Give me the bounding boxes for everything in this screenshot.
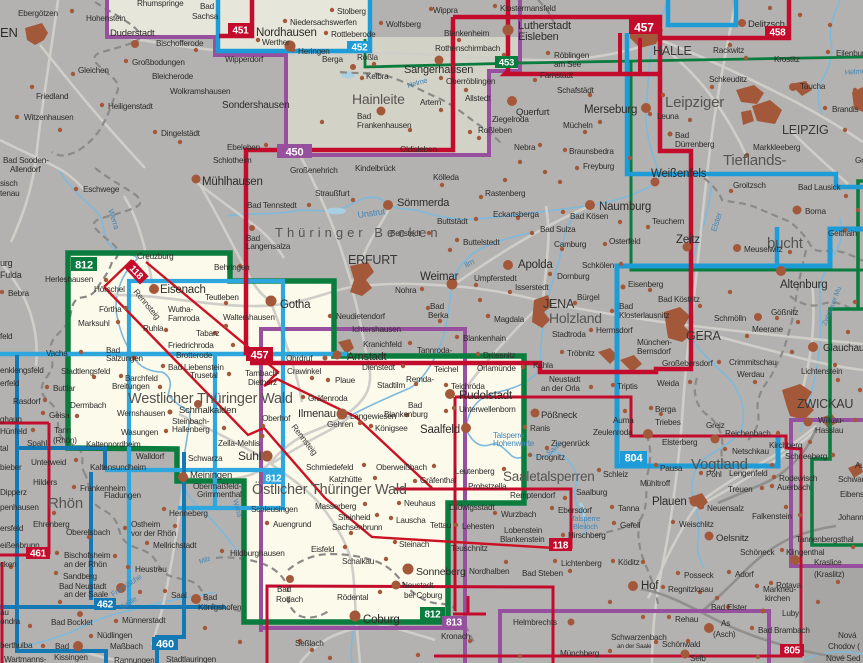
svg-text:Bad Steben: Bad Steben [522, 569, 563, 578]
svg-text:Zeitz: Zeitz [676, 234, 700, 246]
svg-text:Chodov (: Chodov ( [828, 642, 860, 651]
svg-text:Teutleben: Teutleben [205, 293, 239, 302]
svg-text:812: 812 [265, 473, 282, 484]
svg-text:453: 453 [499, 57, 514, 68]
svg-text:Langensalza: Langensalza [246, 242, 291, 251]
svg-text:Saalfeld: Saalfeld [420, 424, 460, 436]
svg-text:Sachsenbrunn: Sachsenbrunn [332, 523, 383, 532]
svg-text:Bad Sulza: Bad Sulza [540, 225, 576, 234]
svg-text:Teichel: Teichel [434, 365, 458, 374]
svg-text:Schkeuditz: Schkeuditz [709, 75, 747, 84]
svg-text:(Rhön): (Rhön) [53, 436, 77, 445]
svg-text:Bad Sooden-: Bad Sooden- [3, 156, 49, 165]
svg-text:Bad Elster: Bad Elster [711, 603, 747, 612]
svg-text:Altenburg: Altenburg [780, 279, 827, 291]
svg-text:Barchfeld: Barchfeld [125, 374, 158, 383]
svg-text:Meerane: Meerane [752, 325, 784, 334]
svg-text:LEIPZIG: LEIPZIG [782, 123, 829, 137]
svg-text:Bad Kösen: Bad Kösen [570, 212, 609, 221]
svg-text:Friedland: Friedland [36, 92, 69, 101]
svg-text:Meiningen: Meiningen [190, 470, 232, 481]
svg-text:Fulda: Fulda [0, 270, 22, 280]
svg-text:804: 804 [625, 452, 644, 464]
svg-text:Buttstädt: Buttstädt [437, 217, 468, 226]
svg-text:Geithain: Geithain [828, 229, 858, 238]
svg-text:Bad: Bad [430, 302, 445, 311]
svg-text:Rannungen: Rannungen [114, 656, 155, 663]
svg-text:Bad: Bad [675, 131, 690, 140]
svg-text:Zella-Mehlis: Zella-Mehlis [218, 439, 260, 448]
svg-text:Remptendorf: Remptendorf [510, 491, 556, 500]
svg-text:Walldorf: Walldorf [136, 452, 165, 461]
svg-text:Auerbach: Auerbach [777, 483, 811, 492]
svg-text:JENA: JENA [543, 297, 575, 311]
svg-text:Saal: Saal [171, 591, 187, 600]
svg-text:Sondershausen: Sondershausen [222, 100, 289, 111]
svg-text:Rottleberode: Rottleberode [331, 30, 376, 39]
svg-text:Bischofsheim: Bischofsheim [64, 551, 111, 560]
svg-text:enklengsfeld: enklengsfeld [0, 366, 44, 375]
svg-text:Regnitzlosau: Regnitzlosau [668, 585, 714, 594]
svg-text:Blankenburg: Blankenburg [384, 410, 428, 419]
svg-text:cken: cken [0, 560, 17, 569]
svg-text:Röblingen: Röblingen [554, 51, 590, 60]
svg-text:812: 812 [75, 259, 93, 271]
svg-text:Frankenhausen: Frankenhausen [357, 121, 412, 130]
svg-text:Hohenstein: Hohenstein [86, 14, 126, 23]
svg-text:Ohrdruf: Ohrdruf [286, 354, 313, 363]
svg-text:Bad Tennstedt: Bad Tennstedt [247, 201, 298, 210]
svg-text:Ludwigsstadt: Ludwigsstadt [449, 503, 495, 512]
svg-text:Remda-: Remda- [406, 375, 434, 384]
svg-text:Krostitz: Krostitz [774, 55, 800, 64]
svg-text:Sömmerda: Sömmerda [397, 197, 450, 209]
svg-text:Neuensalz: Neuensalz [707, 504, 744, 513]
svg-text:Triebes: Triebes [655, 418, 681, 427]
svg-text:Schmölln: Schmölln [714, 314, 747, 323]
svg-text:Unterweid: Unterweid [31, 458, 67, 467]
svg-text:(Asch): (Asch) [713, 630, 736, 639]
svg-text:Schwarza: Schwarza [188, 454, 223, 463]
svg-text:Tieflands-: Tieflands- [723, 152, 787, 169]
svg-text:Schwarzenberg: Schwarzenberg [838, 475, 863, 484]
svg-text:Hof: Hof [641, 580, 659, 592]
svg-text:Heustreu: Heustreu [135, 565, 167, 574]
svg-text:Eisenberg: Eisenberg [628, 280, 664, 289]
svg-text:Unterwellenborn: Unterwellenborn [459, 405, 516, 414]
svg-text:450: 450 [286, 146, 304, 158]
svg-text:Rasdorf: Rasdorf [13, 397, 41, 406]
svg-text:Umpferstedt: Umpferstedt [474, 274, 517, 283]
svg-text:Leipziger: Leipziger [665, 94, 724, 111]
svg-text:Berga: Berga [322, 55, 343, 64]
svg-text:Lehesten: Lehesten [462, 522, 495, 531]
svg-text:Markkleeberg: Markkleeberg [753, 143, 801, 152]
svg-text:Steinheid: Steinheid [338, 513, 371, 522]
svg-text:tal: tal [0, 444, 8, 453]
svg-text:Probstzella: Probstzella [468, 482, 507, 491]
svg-text:Bad: Bad [357, 112, 372, 121]
svg-text:Zeulenroda: Zeulenroda [593, 428, 633, 437]
svg-text:Bischofferode: Bischofferode [156, 39, 204, 48]
svg-text:Gefell: Gefell [620, 521, 641, 530]
svg-text:bei Coburg: bei Coburg [404, 591, 443, 600]
svg-text:Hirschberg: Hirschberg [568, 531, 606, 540]
svg-text:Lichtenberg: Lichtenberg [561, 559, 602, 568]
svg-text:Buttelstedt: Buttelstedt [463, 238, 500, 247]
svg-text:tenau: tenau [0, 189, 20, 198]
svg-text:Rudolstadt: Rudolstadt [459, 390, 513, 402]
svg-text:Leutenberg: Leutenberg [455, 467, 495, 476]
svg-text:Wipperdorf: Wipperdorf [225, 55, 264, 64]
svg-text:Thüringer Becken: Thüringer Becken [275, 225, 442, 240]
svg-text:Camburg: Camburg [554, 240, 587, 249]
svg-text:Bebra: Bebra [8, 289, 29, 298]
svg-text:Dornburg: Dornburg [557, 272, 590, 281]
svg-text:Ebergötzen: Ebergötzen [18, 9, 59, 18]
svg-text:Nová: Nová [838, 631, 857, 640]
svg-text:Hohenwarte: Hohenwarte [493, 439, 535, 448]
svg-text:München-: München- [637, 338, 672, 347]
svg-text:Grimma: Grimma [855, 156, 863, 165]
svg-text:Selb: Selb [690, 654, 706, 663]
svg-text:Schleiz: Schleiz [603, 470, 628, 479]
svg-text:Naumburg: Naumburg [599, 201, 651, 213]
svg-text:Groitzsch: Groitzsch [733, 181, 766, 190]
svg-text:Taucha: Taucha [800, 82, 826, 91]
svg-text:Borna: Borna [805, 207, 826, 216]
svg-text:Johanngeorgenstadt: Johanngeorgenstadt [838, 513, 863, 522]
svg-text:Schöneck: Schöneck [740, 548, 775, 557]
svg-text:Witzenhausen: Witzenhausen [24, 113, 74, 122]
svg-text:Stadtlengsfeld: Stadtlengsfeld [61, 367, 111, 376]
svg-text:Schafstädt: Schafstädt [557, 86, 595, 95]
svg-text:Weischlitz: Weischlitz [679, 520, 714, 529]
svg-text:Eibenstock: Eibenstock [840, 490, 863, 499]
svg-text:Crimmitschau: Crimmitschau [729, 358, 777, 367]
svg-text:Rehau: Rehau [675, 615, 699, 624]
svg-text:Straußfurt: Straußfurt [315, 189, 350, 198]
svg-text:Sangerhausen: Sangerhausen [404, 64, 473, 76]
svg-text:Sachsa: Sachsa [192, 12, 219, 21]
svg-text:Oelsnitz: Oelsnitz [716, 533, 749, 544]
svg-text:Oberhof: Oberhof [262, 414, 291, 423]
svg-text:Meuselwitz: Meuselwitz [744, 245, 783, 254]
svg-text:118: 118 [553, 540, 569, 551]
svg-text:ondra: ondra [0, 617, 21, 626]
svg-text:Schwarzenbach: Schwarzenbach [611, 633, 667, 642]
svg-text:Kranichfeld: Kranichfeld [363, 340, 402, 349]
svg-text:Dingelstädt: Dingelstädt [161, 129, 201, 138]
svg-text:Tröbnitz: Tröbnitz [567, 349, 595, 358]
svg-text:(Kraslitz): (Kraslitz) [814, 570, 845, 579]
svg-text:Werther: Werther [262, 38, 290, 47]
svg-text:Glauchau: Glauchau [823, 343, 863, 354]
svg-text:Salzungen: Salzungen [106, 354, 144, 363]
svg-text:Hildburghausen: Hildburghausen [230, 549, 285, 558]
svg-text:Brotterode: Brotterode [176, 351, 213, 360]
svg-text:Nordhausen: Nordhausen [256, 27, 317, 39]
svg-text:Tann: Tann [54, 426, 72, 435]
svg-text:Lobenstein: Lobenstein [504, 526, 543, 535]
svg-text:Hilders: Hilders [33, 478, 57, 487]
svg-text:penhausen: penhausen [0, 503, 39, 512]
svg-text:Berka: Berka [428, 311, 449, 320]
svg-text:Münnerstadt: Münnerstadt [122, 616, 166, 625]
svg-text:Hallenberg: Hallenberg [172, 425, 210, 434]
svg-text:Arnstadt: Arnstadt [347, 351, 387, 363]
svg-text:457: 457 [251, 349, 269, 361]
svg-text:Rackwitz: Rackwitz [713, 46, 744, 55]
svg-text:Adorf: Adorf [735, 570, 754, 579]
svg-text:451: 451 [232, 25, 249, 36]
svg-text:Schalkau: Schalkau [342, 557, 375, 566]
svg-text:Gotha: Gotha [280, 299, 311, 311]
svg-text:Eckartsberga: Eckartsberga [493, 210, 539, 219]
svg-text:Wilkau-: Wilkau- [818, 416, 844, 425]
svg-text:Friedrichroda: Friedrichroda [168, 341, 214, 350]
svg-text:Wartmanns-: Wartmanns- [4, 655, 47, 663]
svg-text:Ichtershausen: Ichtershausen [352, 325, 401, 334]
svg-text:Roßla: Roßla [357, 53, 378, 62]
svg-text:Bad: Bad [200, 2, 215, 11]
svg-text:Auengrund: Auengrund [273, 520, 312, 529]
svg-text:Westlicher Thüringer Wald: Westlicher Thüringer Wald [128, 391, 293, 407]
svg-text:Posseck: Posseck [684, 571, 715, 580]
svg-text:Wutha-: Wutha- [168, 305, 194, 314]
svg-text:Hermsdorf: Hermsdorf [596, 326, 633, 335]
svg-text:Pausa: Pausa [660, 464, 683, 473]
svg-text:Blankenstein: Blankenstein [500, 535, 545, 544]
svg-text:Köditz: Köditz [618, 558, 640, 567]
svg-text:HALLE: HALLE [653, 44, 692, 58]
svg-text:Oberweißbach: Oberweißbach [376, 463, 427, 472]
svg-text:GERA: GERA [686, 329, 721, 343]
svg-text:Bleiloch: Bleiloch [573, 522, 598, 531]
svg-text:Rotava: Rotava [776, 581, 801, 590]
svg-text:Reichenbach: Reichenbach [725, 429, 771, 438]
svg-text:Sonneberg: Sonneberg [416, 566, 466, 578]
svg-text:Merseburg: Merseburg [584, 104, 637, 116]
svg-text:Klosterlausnitz: Klosterlausnitz [619, 311, 669, 320]
svg-text:Orlamünde: Orlamünde [477, 364, 516, 373]
svg-text:812: 812 [424, 609, 441, 620]
svg-text:Mellrichstadt: Mellrichstadt [153, 541, 197, 550]
svg-text:Bad: Bad [203, 593, 218, 602]
svg-text:Kirchberg: Kirchberg [769, 441, 803, 450]
svg-text:Rodewisch: Rodewisch [779, 474, 818, 483]
svg-text:Schneeberg: Schneeberg [785, 452, 828, 461]
svg-text:bieber: bieber [0, 463, 22, 472]
svg-text:Eisleben: Eisleben [518, 31, 559, 43]
svg-text:Gräfenthal: Gräfenthal [420, 476, 457, 485]
svg-text:Bad: Bad [55, 642, 70, 651]
svg-text:460: 460 [156, 638, 174, 650]
svg-text:Holzland: Holzland [549, 310, 602, 326]
svg-text:erfeld: erfeld [0, 379, 20, 388]
svg-text:Wippra: Wippra [433, 6, 458, 15]
svg-text:Stadtroda: Stadtroda [552, 330, 586, 339]
svg-text:Bad Köstritz: Bad Köstritz [658, 295, 700, 304]
svg-text:ersfeld: ersfeld [0, 524, 24, 533]
svg-text:Bernsdorf: Bernsdorf [637, 347, 672, 356]
svg-text:Dietharz: Dietharz [248, 378, 277, 387]
svg-text:Kissingen: Kissingen [54, 653, 88, 662]
svg-text:Rothenschirmbach: Rothenschirmbach [435, 44, 501, 53]
svg-text:Tannenbergsthal: Tannenbergsthal [796, 535, 854, 544]
svg-text:462: 462 [97, 599, 114, 610]
svg-text:Grimmenthal: Grimmenthal [197, 490, 242, 499]
svg-text:Dipperz: Dipperz [0, 488, 27, 497]
svg-text:Ebeleben: Ebeleben [227, 143, 261, 152]
svg-text:Bleicherode: Bleicherode [152, 72, 194, 81]
svg-text:Kraslice: Kraslice [814, 558, 842, 567]
svg-text:Hörschel: Hörschel [94, 285, 125, 294]
svg-text:Ostheim: Ostheim [131, 520, 160, 529]
svg-text:Tannroda-: Tannroda- [417, 346, 453, 355]
svg-text:Magdala: Magdala [494, 315, 525, 324]
svg-text:Königsee: Königsee [375, 424, 408, 433]
svg-text:an der Saale: an der Saale [64, 590, 109, 599]
svg-text:feld: feld [0, 332, 13, 341]
svg-text:Berga: Berga [655, 405, 676, 414]
svg-text:Neuhaus: Neuhaus [404, 499, 435, 508]
svg-text:813: 813 [446, 617, 463, 628]
svg-text:Großenehrich: Großenehrich [290, 166, 338, 175]
svg-text:Tambach-: Tambach- [245, 369, 280, 378]
svg-text:Wolfsberg: Wolfsberg [386, 20, 422, 29]
svg-text:Geisa: Geisa [49, 411, 70, 420]
svg-text:Nebra: Nebra [514, 143, 536, 152]
svg-text:Rhumspringe: Rhumspringe [137, 0, 184, 8]
svg-text:Schlotheim: Schlotheim [213, 156, 252, 165]
svg-text:Nordhalben: Nordhalben [469, 567, 510, 576]
svg-text:am See: am See [554, 60, 582, 69]
svg-text:Falkenstein: Falkenstein [752, 512, 792, 521]
svg-text:Münchberg: Münchberg [560, 649, 600, 658]
svg-text:Artern: Artern [420, 98, 442, 107]
svg-text:Niedersachswerfen: Niedersachswerfen [290, 18, 357, 27]
svg-text:Allendorf: Allendorf [10, 165, 41, 174]
svg-text:Weida: Weida [657, 379, 680, 388]
svg-text:Tabarz: Tabarz [196, 329, 219, 338]
svg-text:Rodach: Rodach [276, 595, 304, 604]
svg-text:Apolda: Apolda [518, 259, 553, 271]
svg-text:Spahl: Spahl [27, 439, 47, 448]
svg-text:Ruhla: Ruhla [143, 324, 164, 333]
svg-text:Vogtland: Vogtland [691, 456, 748, 473]
svg-text:Bad: Bad [619, 302, 634, 311]
svg-text:Trusetal: Trusetal [190, 371, 218, 380]
svg-text:Brandis: Brandis [832, 105, 858, 114]
svg-text:Aue: Aue [855, 461, 863, 470]
svg-text:Lauscha: Lauscha [396, 516, 426, 525]
svg-text:Stolberg: Stolberg [337, 7, 367, 16]
svg-text:Schmiedefeld: Schmiedefeld [306, 463, 354, 472]
svg-text:Plaue: Plaue [335, 376, 356, 385]
svg-text:Wolkramshausen: Wolkramshausen [170, 87, 231, 96]
svg-text:Leuna: Leuna [657, 112, 679, 121]
svg-text:Herleshausen: Herleshausen [45, 275, 94, 284]
svg-text:an der Saale: an der Saale [617, 643, 652, 650]
svg-text:As: As [721, 619, 730, 628]
svg-text:Coburg: Coburg [363, 614, 400, 626]
svg-text:Plauen: Plauen [652, 496, 687, 508]
svg-text:Duderstadt: Duderstadt [110, 28, 155, 39]
svg-text:Roßleben: Roßleben [478, 126, 513, 135]
svg-text:Bad: Bad [277, 585, 292, 594]
svg-text:EN: EN [0, 25, 18, 40]
svg-text:Ranis: Ranis [530, 424, 550, 433]
svg-text:Netschkau: Netschkau [732, 447, 770, 456]
svg-text:Hainleite: Hainleite [352, 91, 405, 107]
svg-text:Gehren: Gehren [327, 420, 354, 429]
svg-text:Creuzburg: Creuzburg [137, 252, 174, 261]
svg-text:Schönwald: Schönwald [662, 640, 701, 649]
svg-text:Rhön: Rhön [48, 495, 83, 512]
svg-text:Kahla: Kahla [533, 361, 554, 370]
svg-text:Lichtenstein: Lichtenstein [801, 367, 843, 376]
svg-text:Werdau: Werdau [737, 370, 765, 379]
svg-text:461: 461 [30, 548, 47, 559]
svg-text:Breitungen: Breitungen [112, 382, 150, 391]
svg-text:Masserberg: Masserberg [315, 502, 357, 511]
svg-text:sisch: sisch [0, 179, 18, 188]
svg-text:Weißenfels: Weißenfels [651, 168, 707, 180]
svg-text:Förtha: Förtha [99, 305, 122, 314]
svg-text:Pößneck: Pößneck [541, 410, 578, 421]
svg-text:Greiz: Greiz [706, 421, 725, 430]
svg-text:Bad: Bad [408, 401, 423, 410]
svg-text:Tettau: Tettau [430, 521, 452, 530]
svg-text:Bürgel: Bürgel [577, 293, 600, 302]
svg-text:Eilenburg: Eilenburg [836, 49, 863, 58]
svg-text:Hünfeld: Hünfeld [0, 427, 27, 436]
svg-text:Saaletalsperren: Saaletalsperren [503, 469, 595, 484]
svg-text:urg: urg [0, 258, 13, 268]
svg-text:Gößnitz: Gößnitz [771, 308, 798, 317]
svg-text:Schkölen: Schkölen [582, 261, 615, 270]
svg-text:Eschwege: Eschwege [83, 185, 120, 194]
svg-text:Fladungen: Fladungen [104, 491, 142, 500]
svg-text:Teuchern: Teuchern [652, 217, 685, 226]
svg-text:Steinach: Steinach [399, 540, 430, 549]
svg-text:Blankenhain: Blankenhain [463, 334, 507, 343]
svg-text:805: 805 [784, 645, 801, 656]
svg-text:Dermbach: Dermbach [70, 401, 107, 410]
svg-text:Crawinkel: Crawinkel [287, 367, 322, 376]
svg-text:Buttlar: Buttlar [53, 384, 76, 393]
svg-text:Hasslau: Hasslau [815, 426, 844, 435]
svg-text:Treuen: Treuen [728, 485, 753, 494]
svg-text:Suhl: Suhl [238, 449, 261, 463]
svg-text:an der Orla: an der Orla [541, 384, 580, 393]
svg-text:Nüdlingen: Nüdlingen [97, 631, 133, 640]
svg-text:Kindelbrück: Kindelbrück [355, 164, 397, 173]
svg-text:Tanna: Tanna [618, 504, 640, 513]
svg-text:Mühlhausen: Mühlhausen [202, 176, 263, 188]
svg-text:Eisfeld: Eisfeld [311, 545, 335, 554]
svg-text:Bad Bocklet: Bad Bocklet [51, 618, 93, 627]
svg-text:452: 452 [351, 42, 368, 53]
svg-text:berthulba: berthulba [0, 641, 33, 650]
svg-text:Kaltensundheim: Kaltensundheim [90, 463, 146, 472]
svg-text:Mücheln: Mücheln [563, 121, 593, 130]
svg-text:Auma: Auma [613, 416, 634, 425]
svg-text:Helmbrechts: Helmbrechts [513, 618, 557, 627]
svg-text:Königshofen: Königshofen [198, 603, 242, 612]
svg-text:Braunsbedra: Braunsbedra [569, 147, 614, 156]
